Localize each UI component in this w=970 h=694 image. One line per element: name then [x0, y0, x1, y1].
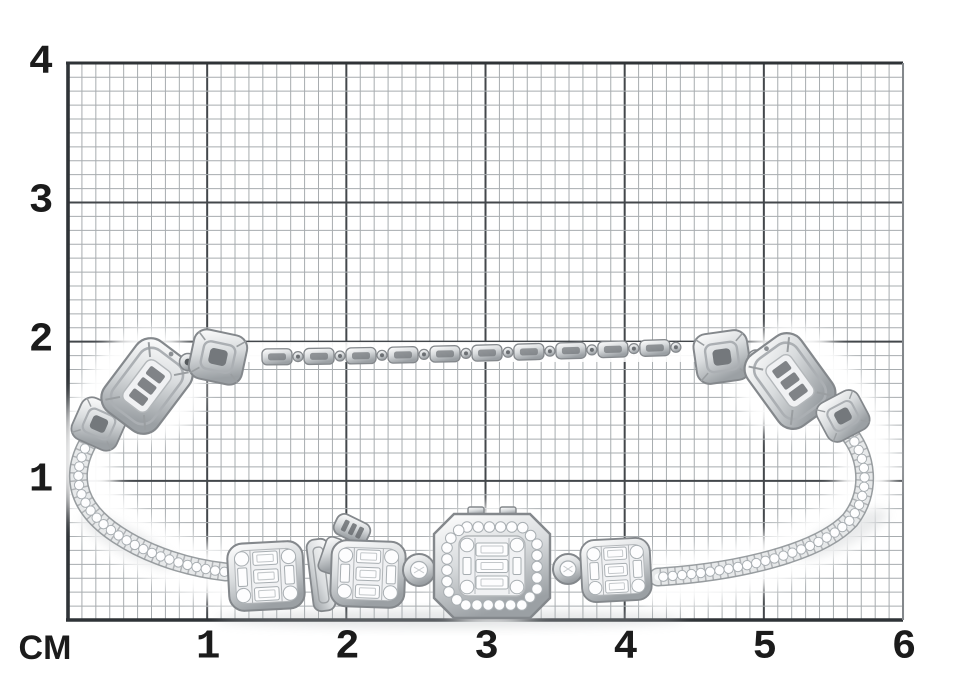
chain-bar-link [346, 347, 376, 364]
measurement-photo: 4321123456CM [0, 0, 970, 694]
diamond-sparkle [861, 484, 864, 487]
diamond-sparkle [520, 525, 523, 528]
x-axis-label-5: 5 [753, 628, 776, 669]
halo-diamond [532, 539, 543, 550]
round-diamond [130, 540, 139, 549]
chain-joint-hole [338, 354, 342, 358]
diamond-sparkle [851, 439, 854, 442]
round-diamond [147, 548, 156, 557]
diamond-sparkle [166, 557, 169, 560]
halo-diamond [483, 600, 494, 611]
diamond-sparkle [856, 502, 859, 505]
diamond-sparkle [94, 515, 97, 518]
clasp-baguette-cluster-right [580, 537, 653, 603]
halo-diamond [532, 573, 543, 584]
round-diamond [139, 544, 148, 553]
diamond-sparkle [498, 524, 501, 527]
diamond-sparkle [670, 573, 673, 576]
chain-bar-link [388, 347, 418, 364]
diamond-sparkle [75, 473, 78, 476]
bracelet-photo [0, 0, 970, 694]
diamond-sparkle [771, 555, 774, 558]
diamond-sparkle [475, 524, 478, 527]
chain-joint-hole [548, 349, 552, 353]
round-diamond [859, 463, 868, 472]
halo-diamond [507, 522, 518, 533]
round-diamond [860, 473, 869, 482]
halo-diamond [484, 522, 495, 533]
diamond-sparkle [486, 524, 489, 527]
diamond-sparkle [446, 589, 449, 592]
chain-joint-hole [674, 345, 678, 349]
round-diamond [859, 482, 868, 491]
chain-joint-hole [632, 347, 636, 351]
chain-bar-link [262, 349, 292, 365]
diamond-sparkle [861, 465, 864, 468]
diamond-sparkle [496, 602, 499, 605]
diamond-sparkle [212, 568, 215, 571]
round-diamond [75, 462, 84, 471]
diamond-sparkle [839, 524, 842, 527]
halo-diamond [442, 576, 453, 587]
diamond-sparkle [744, 562, 747, 565]
diamond-sparkle [509, 524, 512, 527]
diamond-sparkle [132, 542, 135, 545]
round-diamond [854, 500, 863, 509]
halo-diamond [446, 533, 457, 544]
diamond-sparkle [444, 556, 447, 559]
chain-bar-link [514, 343, 544, 360]
bezel-stone-left [403, 554, 435, 586]
diamond-sparkle [101, 521, 104, 524]
diamond-sparkle [194, 564, 197, 567]
y-axis-label-3: 3 [29, 182, 52, 223]
chain-joint-hole [506, 350, 510, 354]
diamond-sparkle [735, 564, 738, 567]
y-axis-label-1: 1 [29, 460, 52, 501]
round-diamond [857, 454, 866, 463]
halo-diamond [442, 565, 453, 576]
diamond-sparkle [534, 586, 537, 589]
diamond-sparkle [852, 510, 855, 513]
halo-diamond [472, 600, 483, 611]
unit-label: CM [19, 631, 72, 665]
round-diamond [696, 568, 705, 577]
diamond-sparkle [534, 552, 537, 555]
round-diamond [858, 491, 867, 500]
diamond-sparkle [79, 454, 82, 457]
chain-bar-link [430, 346, 460, 363]
diamond-sparkle [815, 539, 818, 542]
chain-bar-link [556, 342, 586, 359]
left-small-link-upper [186, 327, 249, 387]
diamond-sparkle [846, 518, 849, 521]
round-diamond [788, 548, 797, 557]
diamond-sparkle [448, 535, 451, 538]
halo-diamond [525, 592, 536, 603]
round-diamond [742, 561, 751, 570]
diamond-sparkle [108, 527, 111, 530]
diamond-sparkle [534, 541, 537, 544]
round-diamond [156, 552, 165, 561]
round-diamond [183, 560, 192, 569]
diamond-sparkle [753, 560, 756, 563]
round-diamond [761, 556, 770, 565]
diamond-sparkle [519, 602, 522, 605]
diamond-sparkle [862, 474, 865, 477]
clasp-baguette-cluster-mid [330, 540, 406, 609]
halo-diamond [444, 587, 455, 598]
x-axis-label-4: 4 [613, 628, 636, 669]
diamond-sparkle [859, 493, 862, 496]
round-diamond [174, 558, 183, 567]
diamond-sparkle [456, 527, 459, 530]
round-diamond [668, 571, 677, 580]
halo-diamond [517, 522, 528, 533]
round-diamond [705, 567, 714, 576]
diamond-sparkle [534, 564, 537, 567]
diamond-sparkle [124, 537, 127, 540]
diamond-sparkle [76, 463, 79, 466]
diamond-sparkle [464, 524, 467, 527]
halo-diamond [532, 561, 543, 572]
diamond-sparkle [140, 546, 143, 549]
chain-joint-hole [422, 352, 426, 356]
diamond-sparkle [780, 553, 783, 556]
chain-joint-hole [464, 351, 468, 355]
round-diamond [210, 566, 219, 575]
diamond-sparkle [679, 572, 682, 575]
chain-joint-hole [590, 348, 594, 352]
round-diamond [724, 564, 733, 573]
diamond-sparkle [149, 550, 152, 553]
x-axis-label-1: 1 [196, 628, 219, 669]
round-diamond [80, 444, 89, 453]
round-diamond [659, 572, 668, 581]
diamond-sparkle [175, 559, 178, 562]
round-diamond [805, 541, 814, 550]
halo-diamond [442, 543, 453, 554]
diamond-sparkle [859, 456, 862, 459]
diamond-sparkle [698, 570, 701, 573]
chain-bar-link [598, 341, 628, 358]
round-diamond [77, 490, 86, 499]
round-diamond [77, 453, 86, 462]
diamond-sparkle [485, 602, 488, 605]
diamond-sparkle [158, 553, 161, 556]
diamond-sparkle [726, 566, 729, 569]
round-diamond [74, 471, 83, 480]
round-diamond [733, 562, 742, 571]
y-axis-label-4: 4 [29, 43, 52, 84]
chain-bar-link [472, 345, 502, 362]
chain-joint-hole [380, 353, 384, 357]
diamond-sparkle [116, 532, 119, 535]
round-diamond [752, 558, 761, 567]
chain-bar-link [640, 340, 670, 357]
round-diamond [770, 554, 779, 563]
halo-diamond [495, 522, 506, 533]
diamond-sparkle [221, 569, 224, 572]
halo-diamond [453, 525, 464, 536]
diamond-sparkle [660, 574, 663, 577]
diamond-sparkle [824, 535, 827, 538]
diamond-sparkle [807, 543, 810, 546]
diamond-sparkle [444, 578, 447, 581]
diamond-sparkle [83, 500, 86, 503]
x-axis-label-6: 6 [892, 628, 915, 669]
diamond-sparkle [528, 533, 531, 536]
halo-diamond [442, 554, 453, 565]
halo-diamond [494, 600, 505, 611]
round-diamond [201, 564, 210, 573]
clasp-baguette-cluster-left [227, 540, 306, 611]
halo-diamond [517, 600, 528, 611]
diamond-sparkle [527, 594, 530, 597]
diamond-sparkle [798, 546, 801, 549]
diamond-sparkle [444, 567, 447, 570]
diamond-sparkle [789, 550, 792, 553]
halo-diamond [452, 595, 463, 606]
diamond-sparkle [185, 562, 188, 565]
diamond-sparkle [762, 558, 765, 561]
halo-diamond [473, 522, 484, 533]
halo-diamond [505, 600, 516, 611]
diamond-sparkle [76, 482, 79, 485]
chain-joint-hole [296, 355, 300, 359]
diamond-sparkle [88, 508, 91, 511]
round-diamond [850, 437, 859, 446]
right-small-link-upper [692, 328, 752, 385]
diamond-sparkle [454, 597, 457, 600]
round-diamond [677, 570, 686, 579]
diamond-sparkle [856, 447, 859, 450]
diamond-sparkle [716, 567, 719, 570]
bezel-stone-right [553, 554, 583, 584]
halo-diamond [532, 550, 543, 561]
diamond-sparkle [463, 602, 466, 605]
diamond-sparkle [707, 569, 710, 572]
diamond-sparkle [79, 491, 82, 494]
round-diamond [165, 555, 174, 564]
diamond-sparkle [474, 602, 477, 605]
diamond-sparkle [203, 566, 206, 569]
round-diamond [797, 545, 806, 554]
round-diamond [779, 551, 788, 560]
round-diamond [687, 569, 696, 578]
diamond-sparkle [82, 446, 85, 449]
x-axis-label-3: 3 [474, 628, 497, 669]
chain-bar-link [304, 348, 334, 364]
round-diamond [715, 566, 724, 575]
diamond-sparkle [832, 530, 835, 533]
x-axis-label-2: 2 [335, 628, 358, 669]
diamond-sparkle [688, 571, 691, 574]
round-diamond [854, 445, 863, 454]
y-axis-label-2: 2 [29, 321, 52, 362]
diamond-sparkle [534, 575, 537, 578]
round-diamond [192, 562, 201, 571]
diamond-sparkle [444, 545, 447, 548]
round-diamond [74, 480, 83, 489]
round-diamond [814, 537, 823, 546]
diamond-sparkle [508, 602, 511, 605]
